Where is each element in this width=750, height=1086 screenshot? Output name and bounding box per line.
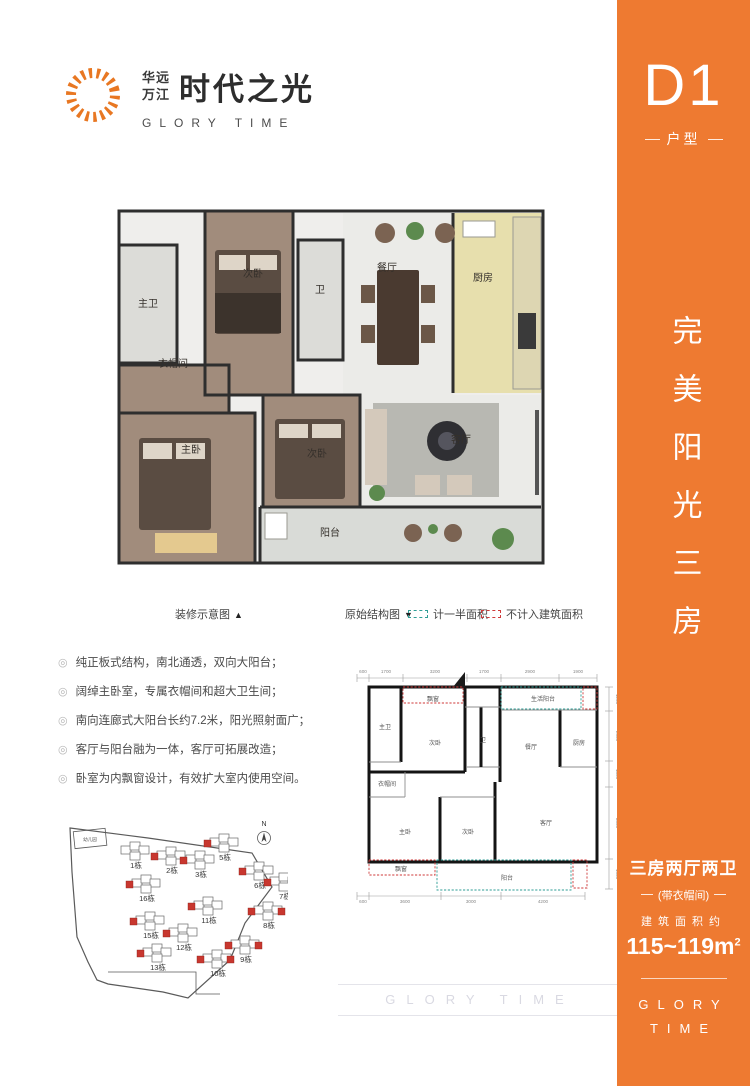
- unit-type-label: 户型: [617, 129, 750, 149]
- ring-bullet-icon: ◎: [58, 656, 68, 670]
- feature-list: ◎纯正板式结构，南北通透，双向大阳台； ◎阔绰主卧室，专属衣帽间和超大卫生间； …: [58, 656, 338, 801]
- brand-en: GLORY TIME: [142, 116, 315, 130]
- svg-text:主卧: 主卧: [181, 443, 201, 456]
- svg-text:次卧: 次卧: [429, 739, 441, 747]
- excluded-swatch-icon: [481, 610, 501, 618]
- svg-text:客厅: 客厅: [540, 819, 552, 827]
- svg-text:5栋: 5栋: [219, 852, 231, 862]
- svg-text:15栋: 15栋: [143, 930, 159, 940]
- svg-text:次卧: 次卧: [243, 267, 263, 280]
- sidebar-brand-en: GLORY TIME: [617, 993, 750, 1042]
- up-triangle-icon: ▲: [234, 610, 243, 620]
- svg-text:2900: 2900: [525, 669, 536, 674]
- watermark: GLORY TIME: [338, 984, 622, 1016]
- svg-text:次卧: 次卧: [462, 828, 474, 836]
- svg-text:飘窗: 飘窗: [427, 695, 439, 703]
- svg-text:11栋: 11栋: [201, 915, 217, 925]
- svg-text:客厅: 客厅: [451, 433, 471, 446]
- svg-text:13栋: 13栋: [150, 962, 166, 972]
- svg-text:生活阳台: 生活阳台: [531, 695, 555, 703]
- legend-row: 装修示意图▲ 原始结构图▼ 计一半面积 不计入建筑面积: [115, 604, 605, 626]
- svg-text:2栋: 2栋: [166, 865, 178, 875]
- brand-cn-small-line2: 万江: [142, 87, 170, 103]
- svg-text:4200: 4200: [538, 899, 549, 904]
- ring-bullet-icon: ◎: [58, 772, 68, 786]
- legend-half-area: 计一半面积: [433, 606, 488, 622]
- svg-text:厨房: 厨房: [573, 739, 585, 747]
- dash-line: [708, 139, 723, 140]
- svg-text:次卧: 次卧: [307, 447, 327, 460]
- svg-text:主卫: 主卫: [138, 298, 158, 310]
- svg-text:厨房: 厨房: [473, 271, 493, 284]
- svg-text:1栋: 1栋: [130, 860, 142, 870]
- legend-decorated: 装修示意图▲: [175, 606, 243, 622]
- brand-text: 华远 万江 时代之光 GLORY TIME: [142, 58, 315, 130]
- dims-top: 60017003200170029001900: [359, 669, 583, 674]
- svg-text:1900: 1900: [573, 669, 584, 674]
- spec-sub: (带衣帽间): [617, 887, 750, 903]
- flyer-page: 华远 万江 时代之光 GLORY TIME: [0, 0, 750, 1086]
- svg-text:1700: 1700: [381, 669, 392, 674]
- svg-text:主卧: 主卧: [399, 828, 411, 836]
- schematic-overlays: [369, 687, 597, 890]
- svg-text:8栋: 8栋: [263, 920, 275, 930]
- orange-sidebar: D1 户型 完美阳光三房 三房两厅两卫 (带衣帽间) 建筑面积约 115~119…: [617, 0, 750, 1086]
- kindergarten-label: 幼儿园: [83, 836, 97, 843]
- spec-block: 三房两厅两卫 (带衣帽间) 建筑面积约 115~119m2 GLORY TIME: [617, 854, 750, 1042]
- dims-bottom: 600360030004200: [359, 899, 548, 904]
- building-clusters: 1栋2栋3栋5栋6栋7栋16栋11栋8栋15栋12栋9栋13栋10栋: [121, 834, 288, 978]
- svg-text:阳台: 阳台: [320, 526, 340, 539]
- svg-text:16栋: 16栋: [139, 893, 155, 903]
- svg-text:餐厅: 餐厅: [377, 261, 397, 274]
- area-label: 建筑面积约: [617, 913, 750, 929]
- svg-text:600: 600: [359, 899, 367, 904]
- decorated-floor-plan: 主卫次卧卫餐厅厨房衣帽间主卧次卧客厅阳台: [115, 195, 545, 600]
- site-plan: 幼儿园 N 1栋2栋3栋5栋6栋7栋16栋11栋8栋15栋12栋9栋13栋10栋: [48, 812, 288, 1017]
- half-area-swatch-icon: [408, 610, 428, 618]
- svg-text:3栋: 3栋: [195, 869, 207, 879]
- svg-text:3000: 3000: [466, 899, 477, 904]
- svg-text:7栋: 7栋: [279, 891, 288, 901]
- brand-cn-small-line1: 华远: [142, 70, 170, 86]
- svg-text:12栋: 12栋: [176, 942, 192, 952]
- north-compass-icon: N: [258, 821, 271, 845]
- vertical-slogan: 完美阳光三房: [662, 315, 706, 663]
- svg-text:3200: 3200: [430, 669, 441, 674]
- brand-logo: 华远 万江 时代之光 GLORY TIME: [56, 58, 315, 132]
- dash-line: [641, 894, 653, 895]
- spec-title: 三房两厅两卫: [617, 854, 750, 879]
- svg-text:卫: 卫: [315, 285, 325, 296]
- feature-item: ◎纯正板式结构，南北通透，双向大阳台；: [58, 656, 338, 671]
- svg-text:10栋: 10栋: [210, 968, 226, 978]
- dash-line: [645, 139, 660, 140]
- dash-line: [714, 894, 726, 895]
- svg-text:卫: 卫: [480, 737, 486, 744]
- svg-text:主卫: 主卫: [379, 723, 391, 731]
- brand-cn-small: 华远 万江: [142, 70, 170, 103]
- svg-text:餐厅: 餐厅: [525, 743, 537, 751]
- feature-item: ◎卧室为内飘窗设计，有效扩大室内使用空间。: [58, 772, 338, 787]
- svg-text:飘窗: 飘窗: [395, 865, 407, 873]
- kindergarten-block: 幼儿园: [73, 828, 107, 848]
- feature-item: ◎客厅与阳台融为一体，客厅可拓展改造；: [58, 743, 338, 758]
- legend-original: 原始结构图▼: [345, 606, 413, 622]
- svg-text:600: 600: [359, 669, 367, 674]
- svg-text:衣帽间: 衣帽间: [378, 780, 396, 788]
- area-value: 115~119m2: [617, 933, 750, 960]
- ring-bullet-icon: ◎: [58, 685, 68, 699]
- brand-spiral-icon: [56, 58, 130, 132]
- svg-text:衣帽间: 衣帽间: [158, 357, 188, 370]
- original-structure-plan: 主卫飘窗次卧卫生活阳台餐厅厨房衣帽间主卧次卧客厅飘窗阳台 60017003200…: [345, 662, 625, 910]
- svg-text:1700: 1700: [479, 669, 490, 674]
- divider-line: [641, 978, 727, 979]
- watermark-text: GLORY TIME: [385, 992, 574, 1007]
- feature-item: ◎南向连廊式大阳台长约7.2米，阳光照射面广；: [58, 714, 338, 729]
- svg-text:9栋: 9栋: [240, 954, 252, 964]
- north-label: N: [261, 821, 266, 828]
- ring-bullet-icon: ◎: [58, 714, 68, 728]
- svg-text:阳台: 阳台: [501, 874, 513, 882]
- svg-text:3600: 3600: [400, 899, 411, 904]
- unit-code: D1: [617, 52, 750, 119]
- ring-bullet-icon: ◎: [58, 743, 68, 757]
- feature-item: ◎阔绰主卧室，专属衣帽间和超大卫生间；: [58, 685, 338, 700]
- legend-excluded: 不计入建筑面积: [506, 606, 583, 622]
- brand-cn-large: 时代之光: [179, 64, 315, 109]
